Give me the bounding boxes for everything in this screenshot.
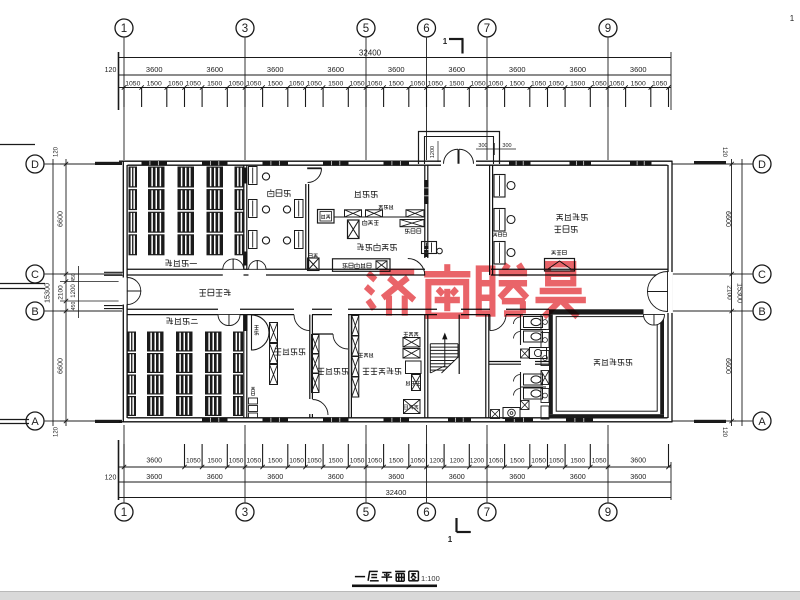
svg-text:1500: 1500 — [389, 81, 404, 88]
svg-text:1500: 1500 — [570, 458, 585, 465]
svg-text:3600: 3600 — [146, 65, 163, 74]
svg-text:450: 450 — [71, 302, 77, 311]
svg-text:1: 1 — [121, 23, 127, 35]
svg-text:1500: 1500 — [147, 81, 162, 88]
svg-text:1050: 1050 — [531, 458, 546, 465]
svg-text:1: 1 — [121, 507, 127, 519]
svg-text:A: A — [758, 416, 766, 428]
svg-text:1050: 1050 — [186, 458, 201, 465]
svg-text:2100: 2100 — [726, 285, 733, 300]
svg-text:1050: 1050 — [471, 81, 486, 88]
svg-text:1500: 1500 — [268, 458, 283, 465]
svg-text:1050: 1050 — [350, 81, 365, 88]
svg-text:6: 6 — [423, 507, 429, 519]
svg-text:C: C — [758, 269, 766, 281]
svg-text:120: 120 — [721, 427, 727, 438]
svg-text:3600: 3600 — [448, 65, 465, 74]
svg-text:6: 6 — [423, 23, 429, 35]
svg-text:1500: 1500 — [389, 458, 404, 465]
svg-text:15300: 15300 — [736, 283, 745, 303]
svg-text:1500: 1500 — [510, 458, 525, 465]
svg-text:1: 1 — [790, 14, 795, 23]
svg-text:5: 5 — [363, 507, 369, 519]
svg-text:1050: 1050 — [367, 81, 382, 88]
svg-text:1050: 1050 — [549, 458, 564, 465]
svg-text:5: 5 — [363, 23, 369, 35]
svg-text:300: 300 — [478, 143, 487, 149]
svg-text:1050: 1050 — [168, 81, 183, 88]
svg-text:7: 7 — [484, 23, 490, 35]
svg-text:1050: 1050 — [307, 458, 322, 465]
svg-text:9: 9 — [605, 507, 611, 519]
svg-text:120: 120 — [721, 147, 727, 158]
svg-text:1050: 1050 — [350, 458, 365, 465]
svg-text:300: 300 — [502, 143, 511, 149]
svg-text:B: B — [758, 306, 765, 318]
svg-text:1200: 1200 — [450, 458, 465, 465]
svg-text:3600: 3600 — [146, 472, 162, 481]
svg-text:3600: 3600 — [509, 472, 525, 481]
svg-text:3600: 3600 — [206, 65, 223, 74]
svg-text:1050: 1050 — [289, 458, 304, 465]
svg-text:3600: 3600 — [570, 472, 586, 481]
svg-text:D: D — [31, 159, 39, 171]
svg-text:3600: 3600 — [630, 65, 647, 74]
svg-text:1500: 1500 — [570, 81, 585, 88]
svg-text:3600: 3600 — [388, 65, 405, 74]
svg-text:32400: 32400 — [359, 49, 382, 58]
svg-text:1050: 1050 — [246, 81, 261, 88]
svg-text:3600: 3600 — [388, 472, 404, 481]
svg-text:1500: 1500 — [449, 81, 464, 88]
svg-text:1200: 1200 — [470, 458, 485, 465]
svg-text:3: 3 — [242, 23, 248, 35]
svg-text:1050: 1050 — [246, 458, 261, 465]
svg-text:1500: 1500 — [207, 458, 222, 465]
svg-text:1050: 1050 — [592, 458, 607, 465]
svg-text:3600: 3600 — [267, 65, 284, 74]
svg-text:3600: 3600 — [449, 472, 465, 481]
svg-text:7: 7 — [484, 507, 490, 519]
svg-text:1500: 1500 — [207, 81, 222, 88]
svg-text:3600: 3600 — [509, 65, 526, 74]
svg-text:32400: 32400 — [386, 488, 407, 497]
svg-text:1050: 1050 — [549, 81, 564, 88]
svg-text:3600: 3600 — [207, 472, 223, 481]
svg-text:1050: 1050 — [229, 81, 244, 88]
svg-text:9: 9 — [605, 23, 611, 35]
svg-text:C: C — [31, 269, 39, 281]
svg-text:1050: 1050 — [410, 81, 425, 88]
svg-text:1500: 1500 — [268, 81, 283, 88]
svg-text:120: 120 — [105, 475, 117, 482]
svg-text:1050: 1050 — [229, 458, 244, 465]
svg-text:3: 3 — [242, 507, 248, 519]
svg-text:6600: 6600 — [724, 211, 733, 227]
svg-text:1: 1 — [448, 535, 453, 544]
svg-text:3600: 3600 — [267, 472, 283, 481]
svg-text:120: 120 — [54, 146, 60, 157]
svg-text:1050: 1050 — [592, 81, 607, 88]
svg-text:1500: 1500 — [328, 81, 343, 88]
svg-text:B: B — [31, 306, 38, 318]
svg-text:3600: 3600 — [146, 458, 162, 465]
svg-text:1050: 1050 — [609, 81, 624, 88]
svg-text:D: D — [758, 159, 766, 171]
svg-text:3600: 3600 — [630, 458, 646, 465]
svg-text:3600: 3600 — [569, 65, 586, 74]
svg-text:1050: 1050 — [186, 81, 201, 88]
svg-text:1: 1 — [443, 37, 448, 46]
svg-text:1050: 1050 — [652, 81, 667, 88]
svg-text:1050: 1050 — [125, 81, 140, 88]
svg-text:1200: 1200 — [430, 146, 436, 158]
svg-text:3600: 3600 — [630, 472, 646, 481]
svg-text:1200: 1200 — [429, 458, 444, 465]
svg-text:1500: 1500 — [631, 81, 646, 88]
svg-text:1050: 1050 — [289, 81, 304, 88]
svg-text:15300: 15300 — [43, 283, 52, 303]
svg-text:1500: 1500 — [328, 458, 343, 465]
svg-text:1050: 1050 — [531, 81, 546, 88]
svg-text:1:100: 1:100 — [421, 574, 440, 583]
svg-text:A: A — [31, 416, 39, 428]
svg-text:1050: 1050 — [488, 458, 503, 465]
svg-text:3600: 3600 — [328, 472, 344, 481]
svg-text:1200: 1200 — [71, 284, 77, 298]
svg-text:6600: 6600 — [724, 358, 733, 374]
svg-text:6600: 6600 — [56, 211, 65, 227]
svg-text:120: 120 — [54, 426, 60, 437]
svg-text:2100: 2100 — [58, 285, 65, 300]
svg-text:1050: 1050 — [428, 81, 443, 88]
svg-text:1050: 1050 — [410, 458, 425, 465]
svg-text:6600: 6600 — [56, 358, 65, 374]
svg-text:120: 120 — [105, 67, 117, 74]
svg-text:3600: 3600 — [327, 65, 344, 74]
svg-text:1050: 1050 — [488, 81, 503, 88]
svg-text:1500: 1500 — [510, 81, 525, 88]
svg-text:1050: 1050 — [307, 81, 322, 88]
svg-text:1050: 1050 — [367, 458, 382, 465]
